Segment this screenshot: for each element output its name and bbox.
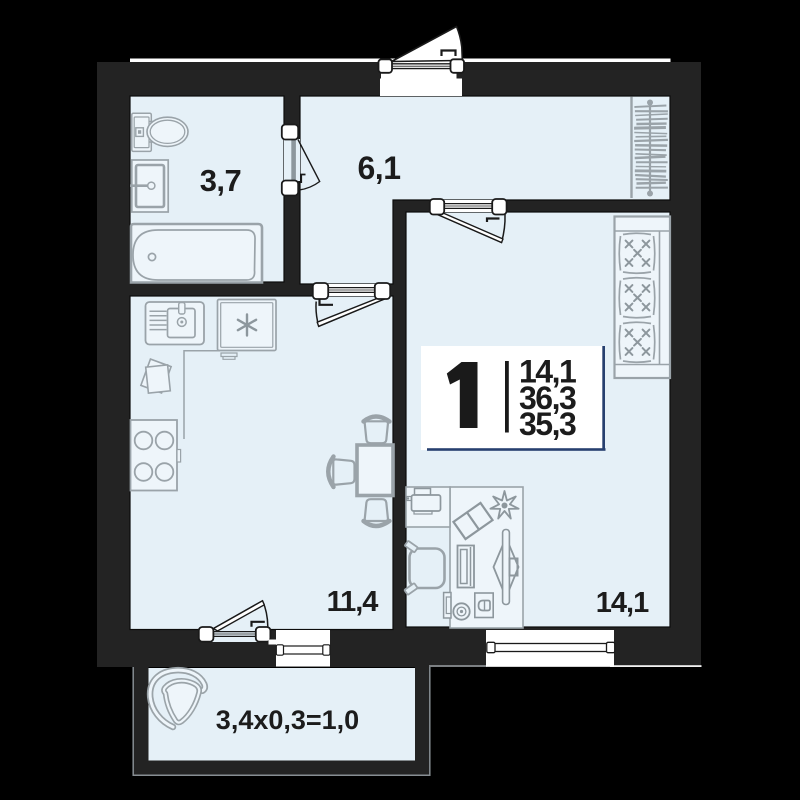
svg-text:3,7: 3,7: [200, 163, 242, 198]
svg-text:11,4: 11,4: [327, 586, 379, 618]
svg-text:3,4x0,3=1,0: 3,4x0,3=1,0: [216, 705, 359, 735]
svg-text:35,3: 35,3: [519, 406, 576, 442]
svg-text:6,1: 6,1: [358, 150, 401, 186]
svg-text:14,1: 14,1: [596, 587, 649, 619]
